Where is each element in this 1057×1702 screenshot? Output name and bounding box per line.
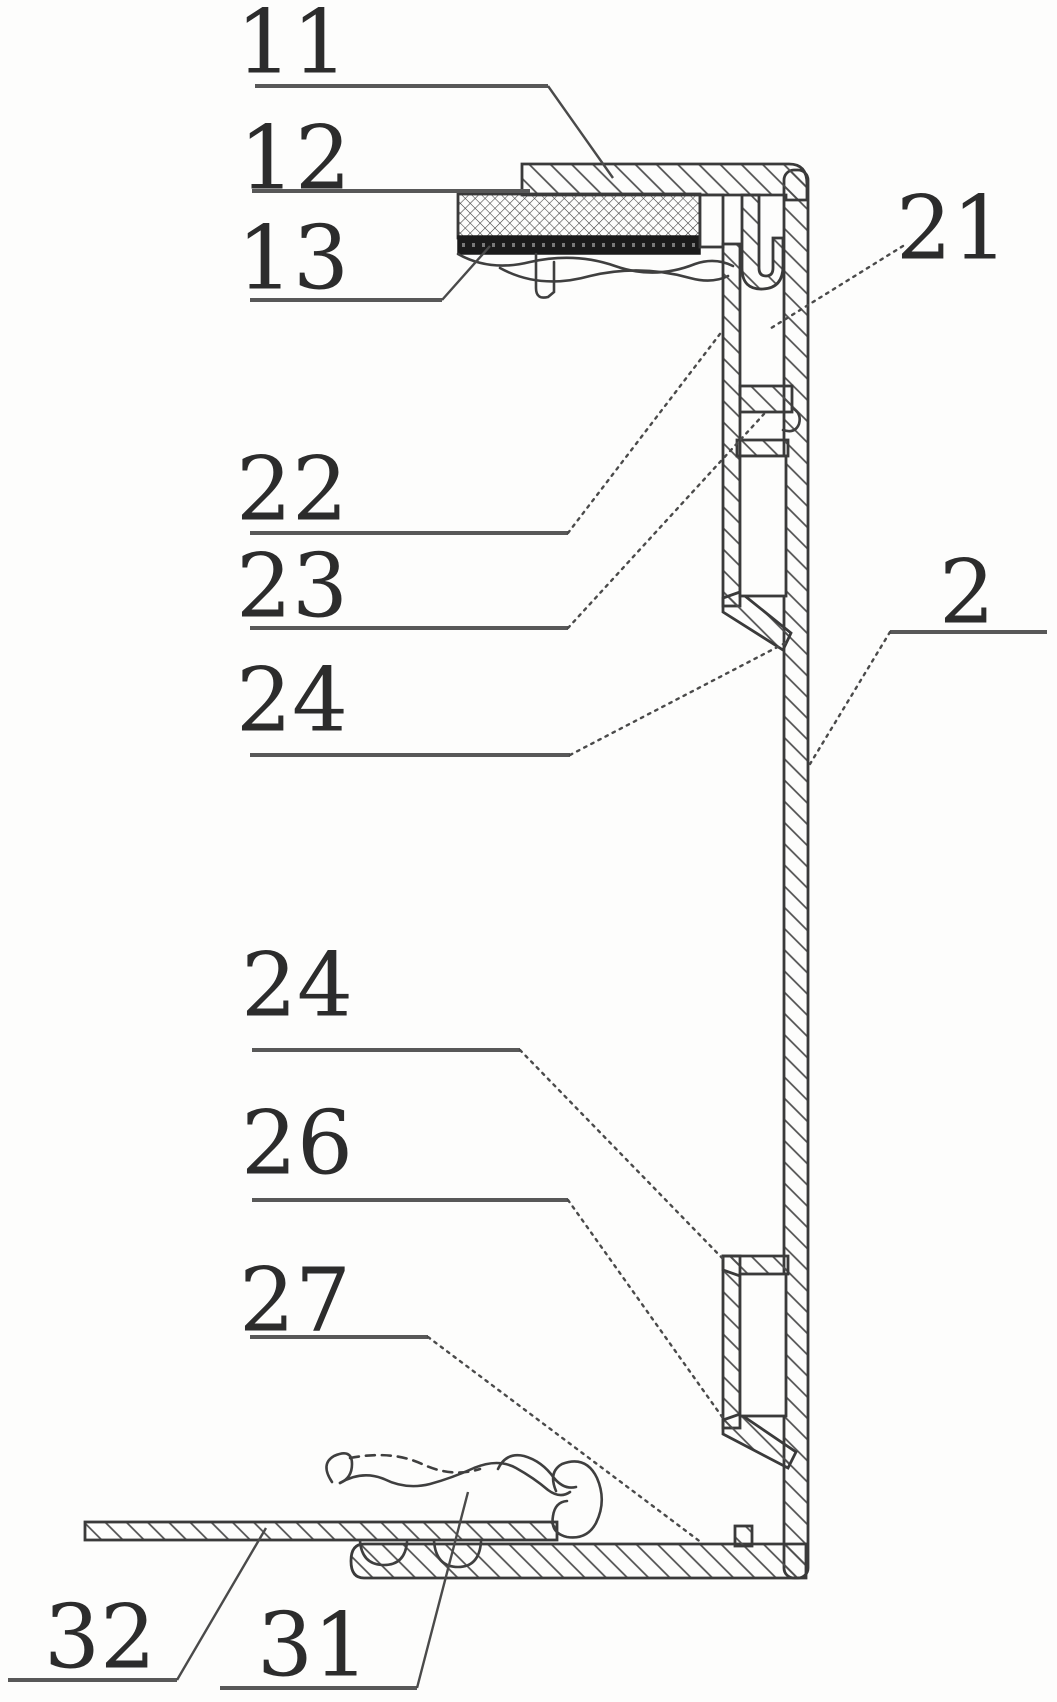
- label-26-leader: [568, 1200, 725, 1421]
- label-27-leader: [428, 1337, 702, 1543]
- label-32-group: 32: [8, 1528, 266, 1689]
- label-26-text: 26: [241, 1092, 353, 1195]
- label-32-leader: [177, 1528, 266, 1680]
- label-24a-leader: [570, 641, 789, 755]
- label-31-text: 31: [257, 1594, 369, 1697]
- label-24a-text: 24: [236, 649, 348, 752]
- upper-pocket-cavity: [740, 456, 786, 596]
- spring-clip-ridge-dashed: [350, 1455, 480, 1472]
- spring-clip-curl: [553, 1461, 602, 1537]
- label-22-text: 22: [236, 438, 348, 541]
- label-24a-group: 24: [236, 641, 789, 755]
- panel-end-block: [700, 195, 723, 247]
- bottom-flange-rib: [735, 1526, 752, 1546]
- panel-bar-crosshatch: [458, 194, 700, 238]
- patent-figure: 11 12 13 21 22 23 24: [0, 0, 1057, 1702]
- label-12-text: 12: [239, 107, 351, 210]
- lower-pocket-cavity: [740, 1274, 786, 1416]
- label-22-leader: [568, 330, 723, 533]
- channel-latch: [740, 386, 792, 412]
- upper-pocket-lip: [737, 440, 788, 456]
- label-13-text: 13: [237, 207, 349, 310]
- label-22-group: 22: [236, 330, 723, 541]
- label-32-text: 32: [44, 1586, 156, 1689]
- label-2-leader: [810, 632, 890, 764]
- channel-front-wall: [723, 244, 740, 606]
- label-24b-text: 24: [241, 934, 353, 1037]
- label-2-group: 2: [810, 541, 1047, 765]
- profile-outer-wall: [784, 170, 808, 1578]
- upper-pocket-bottom: [723, 592, 791, 650]
- label-23-text: 23: [236, 535, 348, 638]
- label-24b-leader: [520, 1050, 726, 1262]
- sealant-wave-top: [458, 254, 733, 273]
- sealant-wave-bottom: [500, 268, 728, 281]
- spring-clip-body: [340, 1463, 570, 1495]
- label-13-group: 13: [237, 207, 490, 310]
- channel-hook-rib: [742, 195, 783, 289]
- bottom-flange: [351, 1544, 806, 1578]
- label-11-text: 11: [236, 0, 348, 94]
- mounting-plate: [85, 1522, 557, 1540]
- label-2-text: 2: [939, 541, 995, 644]
- lower-pocket-wall: [723, 1256, 740, 1428]
- cross-section-drawing: 11 12 13 21 22 23 24: [0, 0, 1057, 1702]
- label-21-text: 21: [896, 177, 1008, 280]
